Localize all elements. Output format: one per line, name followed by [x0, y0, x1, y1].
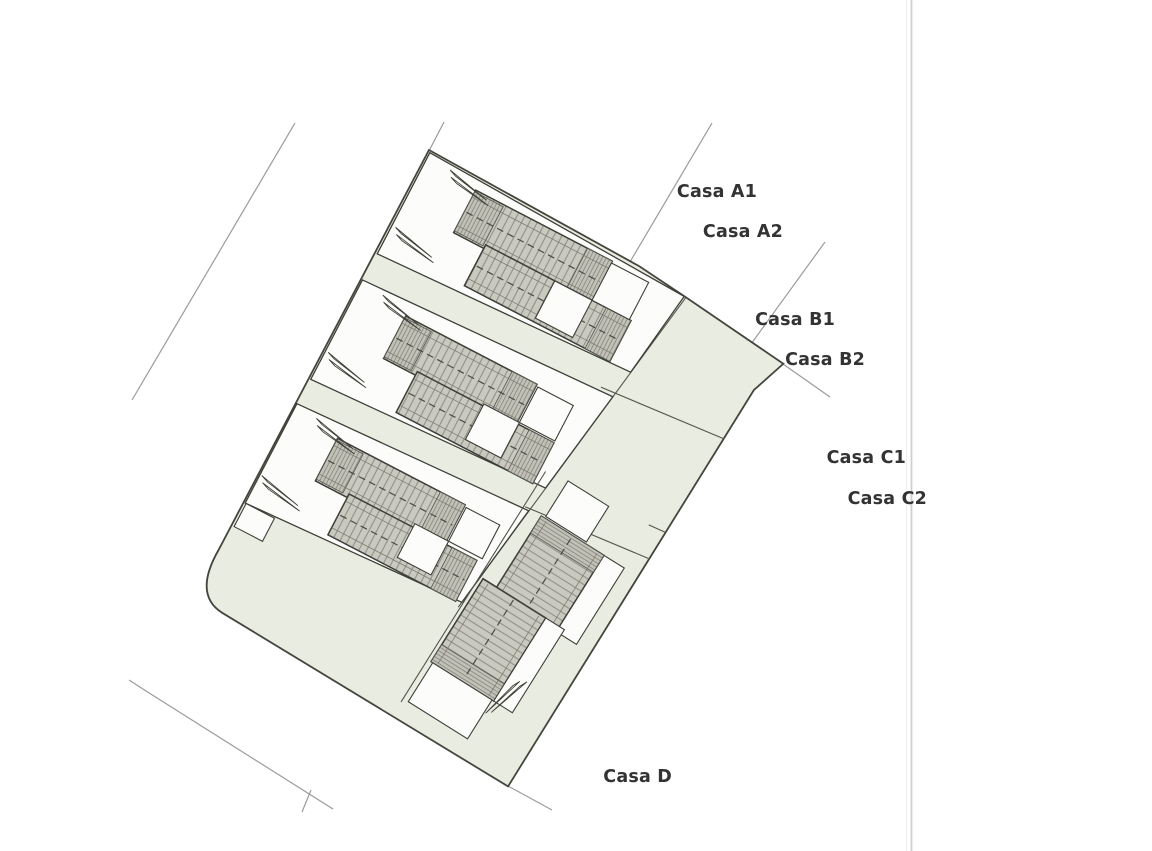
house-label-casa-c2[interactable]: Casa C2: [848, 490, 927, 508]
survey-line-top: [429, 122, 444, 151]
road-line-left: [132, 123, 295, 400]
plan-group: [183, 149, 795, 809]
house-label-casa-b1[interactable]: Casa B1: [755, 311, 835, 329]
page-divider: [907, 0, 912, 851]
house-label-casa-c1[interactable]: Casa C1: [827, 449, 906, 467]
house-label-casa-a1[interactable]: Casa A1: [677, 183, 757, 201]
house-label-casa-a2[interactable]: Casa A2: [703, 223, 783, 241]
house-label-casa-b2[interactable]: Casa B2: [785, 351, 865, 369]
road-tick-bottomleft: [302, 790, 311, 812]
road-line-bottomleft: [129, 680, 333, 809]
site-plan-page: Casa A1Casa A2Casa B1Casa B2Casa C1Casa …: [0, 0, 1152, 851]
site-plan-svg: [0, 0, 1152, 851]
house-label-casa-d[interactable]: Casa D: [603, 768, 672, 786]
boundary-extension-bottom: [508, 786, 552, 810]
